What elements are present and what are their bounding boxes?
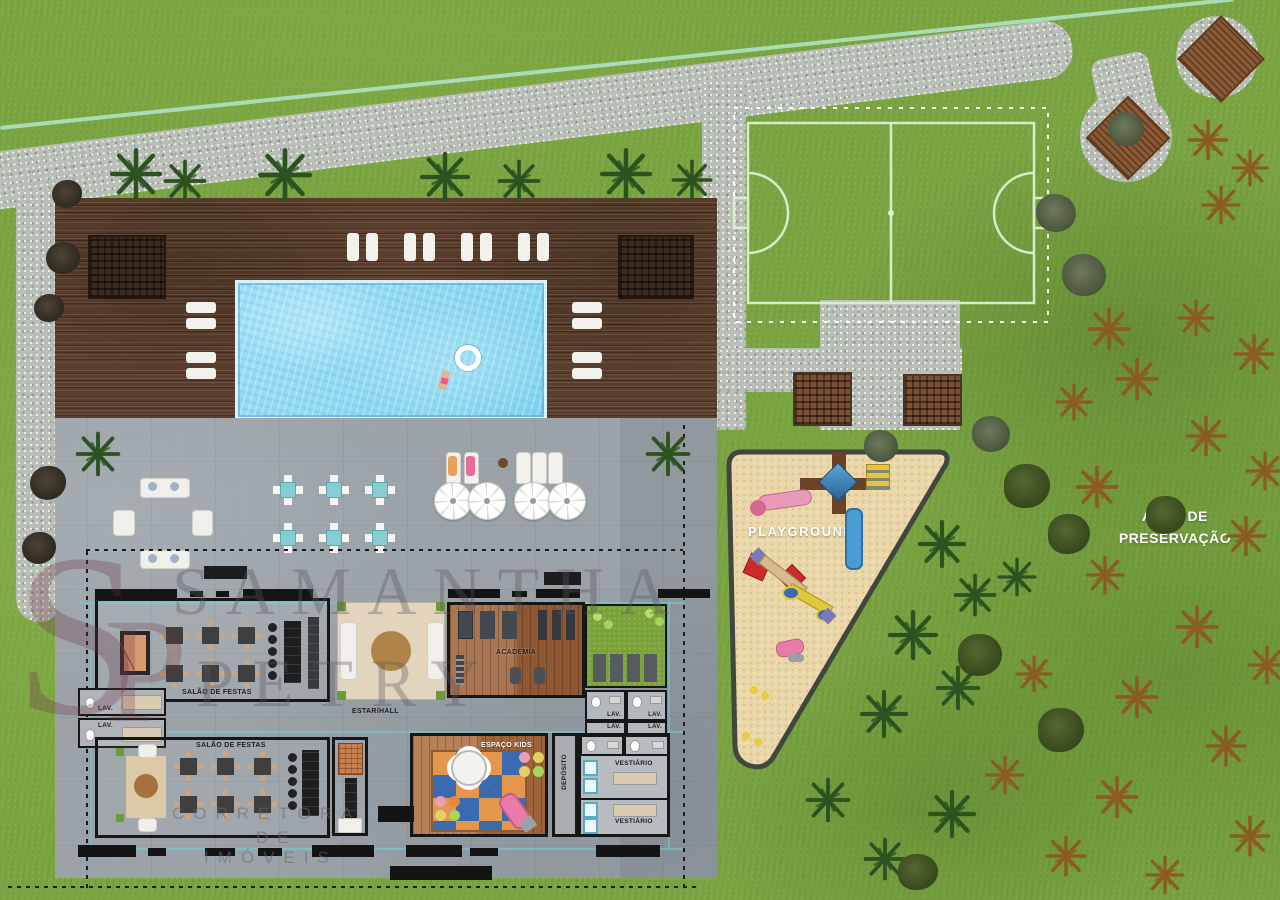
kids-room: ESPAÇO KIDS: [410, 733, 548, 837]
lav-room-left-upper: LAV.: [78, 688, 166, 716]
exercise-mats: [593, 654, 606, 682]
locker-wc: [624, 735, 669, 756]
fern-icon: [1144, 854, 1186, 896]
guide-line: [78, 848, 683, 850]
bistro-table: [280, 482, 296, 498]
fern-icon: [1084, 554, 1126, 596]
play-slide: [845, 508, 863, 570]
playground-label: PLAYGROUND: [748, 524, 854, 539]
fern-icon: [1044, 834, 1088, 878]
wall-segment: [390, 866, 492, 880]
wall-segment: [378, 806, 414, 822]
side-table: [498, 458, 508, 468]
kitchen-cabinets: [308, 617, 319, 689]
fern-icon: [1230, 148, 1270, 188]
palm-tree-icon: [108, 146, 164, 202]
fern-icon: [1094, 774, 1140, 820]
kids-table: [451, 750, 487, 786]
dining-table: [180, 796, 197, 813]
fitness-ball: [645, 609, 654, 618]
lav-room-grid-2: LAV.: [626, 690, 667, 721]
pouf-set: [435, 796, 446, 807]
dining-table: [166, 665, 183, 682]
parasol: [514, 482, 552, 520]
wall-ladder: [456, 655, 464, 685]
gym-machines: [538, 610, 547, 640]
plant-pot: [337, 691, 346, 700]
fern-icon: [1186, 118, 1230, 162]
round-table: [134, 774, 158, 798]
palm-tree-icon: [644, 430, 692, 478]
dining-table: [238, 627, 255, 644]
fern-icon: [1224, 514, 1268, 558]
fern-icon: [1174, 604, 1220, 650]
fern-icon: [1232, 332, 1276, 376]
tube-slide-end: [750, 500, 766, 516]
shower-stall: [583, 778, 598, 794]
parasol: [548, 482, 586, 520]
swimming-pool: [235, 280, 547, 420]
palm-tree-icon: [162, 158, 208, 204]
sun-lounger: [548, 452, 563, 484]
fern-icon: [1204, 724, 1248, 768]
sofa-cushion: [148, 482, 157, 491]
room-label: LAV.: [607, 724, 621, 730]
grill: [338, 743, 363, 775]
dining-table: [202, 665, 219, 682]
dining-table: [217, 796, 234, 813]
room-label: DEPÓSITO: [561, 754, 568, 790]
dining-table: [254, 758, 271, 775]
wall-segment: [512, 591, 527, 597]
palm-tree-icon: [670, 158, 714, 202]
room-label: SALÃO DE FESTAS: [196, 742, 266, 749]
armchair: [138, 744, 157, 758]
dining-table: [202, 627, 219, 644]
billiard-table: [120, 631, 150, 675]
shower-stall: [583, 802, 598, 818]
armchair: [192, 510, 213, 536]
sink: [652, 741, 664, 749]
fern-icon: [984, 754, 1026, 796]
palm-tree-icon: [256, 146, 314, 204]
parasol: [468, 482, 506, 520]
wall-segment: [243, 589, 313, 598]
dining-table: [180, 758, 197, 775]
bistro-table: [326, 530, 342, 546]
fern-icon: [1176, 298, 1216, 338]
sofa-cushion: [170, 482, 179, 491]
toilet: [591, 696, 601, 708]
bistro-table: [372, 530, 388, 546]
sofa-cushion: [170, 554, 179, 563]
hall-sofa: [427, 622, 444, 680]
armchair: [113, 510, 135, 536]
palm-tree-icon: [74, 430, 122, 478]
sink-counter: [122, 695, 162, 710]
fern-icon: [1086, 306, 1132, 352]
spring-rider-base: [788, 654, 804, 662]
bistro-table: [326, 482, 342, 498]
site-plan-canvas: SALÃO DE FESTAS LAV. LAV. ESTAR/HALL ACA…: [0, 0, 1280, 900]
palm-tree-icon: [418, 150, 472, 204]
deck-loungers-right: [572, 302, 602, 313]
wall-segment: [470, 848, 498, 856]
wall-segment: [95, 589, 177, 598]
deck-loungers-left: [186, 302, 216, 313]
dining-table: [254, 796, 271, 813]
sun-lounger: [516, 452, 531, 484]
bench: [204, 566, 247, 579]
fitness-ball: [593, 612, 602, 621]
palm-tree-icon: [996, 556, 1038, 598]
palm-tree-icon: [916, 518, 968, 570]
room-label: VESTIÁRIO: [615, 818, 653, 825]
fitness-ball: [604, 620, 613, 629]
plant-pot: [337, 602, 346, 611]
soccer-field: [722, 100, 1064, 334]
wall-divider: [581, 798, 667, 800]
bbq-counter: [345, 778, 357, 820]
shrub-icon: [1062, 254, 1106, 296]
bistro-table: [280, 530, 296, 546]
toilet: [586, 740, 596, 752]
plant-pot: [436, 602, 445, 611]
sink: [609, 696, 621, 704]
room-label: LAV.: [607, 712, 621, 718]
gym-room: ACADEMIA: [447, 602, 585, 698]
palm-tree-icon: [858, 688, 910, 740]
play-balls: [750, 686, 758, 694]
towel: [466, 456, 475, 476]
room-label: ACADEMIA: [496, 649, 536, 656]
lav-room-grid-1: LAV.: [585, 690, 626, 721]
sink: [650, 696, 662, 704]
towel: [448, 456, 457, 476]
fern-icon: [1244, 450, 1280, 492]
party-hall-upper: SALÃO DE FESTAS: [95, 598, 330, 702]
fitness-ball: [655, 617, 664, 626]
exercise-bikes: [510, 667, 521, 684]
palm-tree-icon: [926, 788, 978, 840]
picnic-pergola: [903, 374, 962, 426]
palm-tree-icon: [598, 146, 654, 202]
treadmills: [458, 611, 473, 639]
parcel-boundary-top: [86, 549, 683, 551]
toilet: [632, 696, 642, 708]
fern-icon: [1114, 674, 1160, 720]
round-rug: [371, 631, 411, 671]
life-ring-icon: [455, 345, 481, 371]
picnic-pergola: [793, 372, 852, 426]
room-label: ESPAÇO KIDS: [481, 742, 532, 749]
parcel-boundary-bottom: [8, 886, 700, 888]
bench: [544, 572, 581, 585]
pouf-set: [519, 752, 530, 763]
wall-segment: [596, 845, 660, 857]
room-label: LAV.: [98, 705, 113, 712]
deck-pergola: [618, 235, 694, 299]
room-label: LAV.: [98, 722, 113, 729]
bar-counter: [302, 750, 319, 816]
wall-segment: [205, 848, 235, 856]
palm-tree-icon: [496, 158, 542, 204]
fern-icon: [1184, 414, 1228, 458]
plant-pot: [116, 814, 124, 822]
wall-segment: [190, 591, 203, 597]
sofa-cushion: [148, 554, 157, 563]
locker-bench: [613, 804, 657, 817]
wall-segment: [406, 845, 462, 857]
dining-table: [217, 758, 234, 775]
shrub-icon: [864, 430, 898, 462]
deck-pergola: [88, 235, 166, 299]
play-tower: [866, 464, 890, 490]
bbq-appliance: [338, 818, 362, 833]
fern-icon: [1200, 184, 1242, 226]
armchair: [138, 818, 157, 832]
shower-stall: [583, 818, 598, 834]
wall-segment: [258, 848, 282, 856]
bar-stools: [288, 753, 297, 762]
wall-segment: [536, 589, 580, 598]
locker-wc: [580, 735, 624, 756]
shower-stall: [583, 760, 598, 776]
toilet: [85, 729, 95, 741]
storage-room: DEPÓSITO: [552, 733, 578, 837]
seesaw-seat: [782, 586, 800, 600]
fern-icon: [1114, 356, 1160, 402]
bistro-table: [372, 482, 388, 498]
palm-tree-icon: [804, 776, 852, 824]
wall-segment: [78, 845, 136, 857]
room-label: LAV.: [648, 712, 662, 718]
wall-segment: [216, 591, 229, 597]
party-hall-lower: SALÃO DE FESTAS: [95, 737, 330, 838]
parcel-boundary-right: [683, 425, 685, 888]
hall-sofa: [340, 622, 357, 680]
bbq-room: [332, 737, 368, 836]
turf-room: [585, 604, 667, 688]
sun-lounger: [532, 452, 547, 484]
fern-icon: [1014, 654, 1054, 694]
bar-stools: [268, 623, 277, 632]
fern-icon: [1228, 814, 1272, 858]
wall-segment: [448, 589, 500, 598]
toilet: [630, 740, 640, 752]
room-label: LAV.: [648, 724, 662, 730]
shrub-icon: [1108, 112, 1144, 146]
palm-tree-icon: [886, 608, 940, 662]
deck-loungers-top: [347, 233, 359, 261]
shrub-icon: [972, 416, 1010, 452]
hall-label: ESTAR/HALL: [352, 708, 399, 715]
locker-bench: [613, 772, 657, 785]
room-label: VESTIÁRIO: [615, 760, 653, 767]
room-label: SALÃO DE FESTAS: [182, 689, 252, 696]
parasol: [434, 482, 472, 520]
wall-segment: [312, 845, 374, 857]
bar-counter: [284, 621, 301, 683]
palm-tree-icon: [952, 572, 998, 618]
plant-pot: [116, 748, 124, 756]
plant-pot: [436, 691, 445, 700]
dining-table: [238, 665, 255, 682]
dining-table: [166, 627, 183, 644]
wall-segment: [148, 848, 166, 856]
shrub-icon: [1036, 194, 1076, 232]
lounge-hall: [337, 602, 445, 700]
toilet: [85, 697, 95, 709]
fern-icon: [1054, 382, 1094, 422]
sink: [607, 741, 619, 749]
locker-rooms: VESTIÁRIO VESTIÁRIO: [578, 733, 670, 837]
fern-icon: [1246, 644, 1280, 686]
fern-icon: [1074, 464, 1120, 510]
